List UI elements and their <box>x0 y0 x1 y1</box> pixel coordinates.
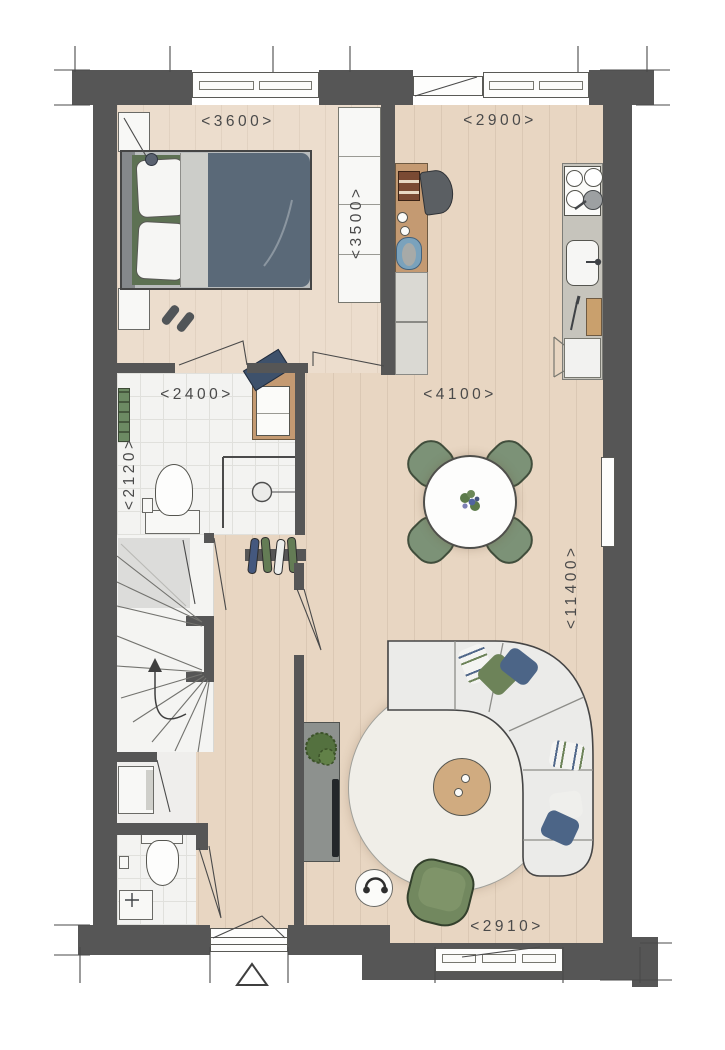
wall-bottom-step <box>362 925 390 980</box>
entrance-threshold <box>210 928 288 952</box>
window-pane <box>522 954 556 963</box>
wall-wardrobe <box>381 105 395 375</box>
wall-stair-newel-bottom <box>186 672 214 682</box>
dim-living-width: <4100> <box>415 386 505 404</box>
wall-toilet-right <box>196 823 208 850</box>
sofa-pillow-striped <box>548 739 586 771</box>
threshold-line <box>211 937 287 938</box>
side-table <box>355 869 393 907</box>
wall-bottom-right-pier <box>632 937 658 987</box>
bedside-lamp <box>145 153 158 166</box>
desk-washbasin-bowl <box>402 243 416 266</box>
desk-cup <box>400 226 410 236</box>
wc-handbasin <box>119 890 153 920</box>
wall-top-left <box>72 70 192 105</box>
bed-pillow <box>136 221 187 281</box>
dim-kitchen-width: <2900> <box>455 112 545 130</box>
dim-bedroom-width: <3600> <box>193 113 283 131</box>
toilet-roll-holder <box>142 498 153 513</box>
dim-closet-depth: <3500> <box>348 172 370 272</box>
wall-hall-stub <box>294 563 304 590</box>
dim-dwelling-depth: <11400> <box>563 532 585 642</box>
wall-bathroom-right <box>295 373 305 535</box>
coffee-cup <box>461 774 470 783</box>
wall-toilet-top <box>117 823 208 835</box>
pan-on-burner <box>583 190 603 210</box>
burner <box>584 168 603 187</box>
armchair-seat <box>416 865 468 914</box>
burner <box>566 170 583 187</box>
desk-cup <box>397 212 408 223</box>
kitchen-sink <box>566 240 599 286</box>
cabinet <box>395 322 428 375</box>
wall-left <box>93 70 117 955</box>
tv-screen <box>332 779 339 857</box>
cabinet <box>395 272 428 322</box>
bed-duvet <box>208 153 310 287</box>
wall-bottom-left <box>78 925 210 955</box>
bed-sheet-fold <box>180 153 210 287</box>
wc-bowl <box>146 840 179 886</box>
window-pane <box>259 81 312 90</box>
side-window-right <box>601 457 615 547</box>
wall-bedroom-south-b <box>247 363 308 373</box>
coffee-cup <box>454 788 463 797</box>
kitchen-window <box>483 72 589 98</box>
floor-plan: <3600> <2900> <3500> <2400> <2120> <4100… <box>0 0 725 1050</box>
dim-bathroom-width: <2400> <box>152 386 242 404</box>
dishwasher-open <box>564 338 601 378</box>
toilet-bowl <box>155 464 193 516</box>
bed <box>120 150 312 290</box>
window-pane <box>482 954 516 963</box>
window-pane <box>199 81 254 90</box>
bedroom-window <box>192 72 319 98</box>
desk-shelf-crate <box>398 171 420 201</box>
wc-roll-holder <box>119 856 129 869</box>
vanity-basin <box>256 386 290 436</box>
window-pane <box>539 81 583 90</box>
cutting-board <box>586 298 602 336</box>
nightstand-top <box>118 112 150 152</box>
window-pane <box>442 954 476 963</box>
living-window <box>435 948 563 972</box>
wall-top-middle <box>319 70 413 105</box>
nightstand-bottom <box>118 288 150 330</box>
window-pane <box>489 81 534 90</box>
coffee-table <box>433 758 491 816</box>
dining-table <box>423 455 517 549</box>
dim-bathroom-depth: <2120> <box>121 426 143 521</box>
threshold-line <box>211 944 287 945</box>
wall-stair-doorpost <box>204 533 214 543</box>
bed-pillow <box>136 158 187 218</box>
washing-machine-door <box>146 770 153 810</box>
kitchen-vent-window <box>413 76 483 96</box>
wall-bedroom-south-a <box>117 363 175 373</box>
burner <box>566 190 584 208</box>
wall-hall-living <box>294 655 304 940</box>
stair-landing <box>118 538 190 608</box>
wall-stairs-bottom <box>117 752 157 762</box>
entrance-triangle-icon <box>237 964 267 985</box>
dim-living-window-width: <2910> <box>462 918 552 936</box>
